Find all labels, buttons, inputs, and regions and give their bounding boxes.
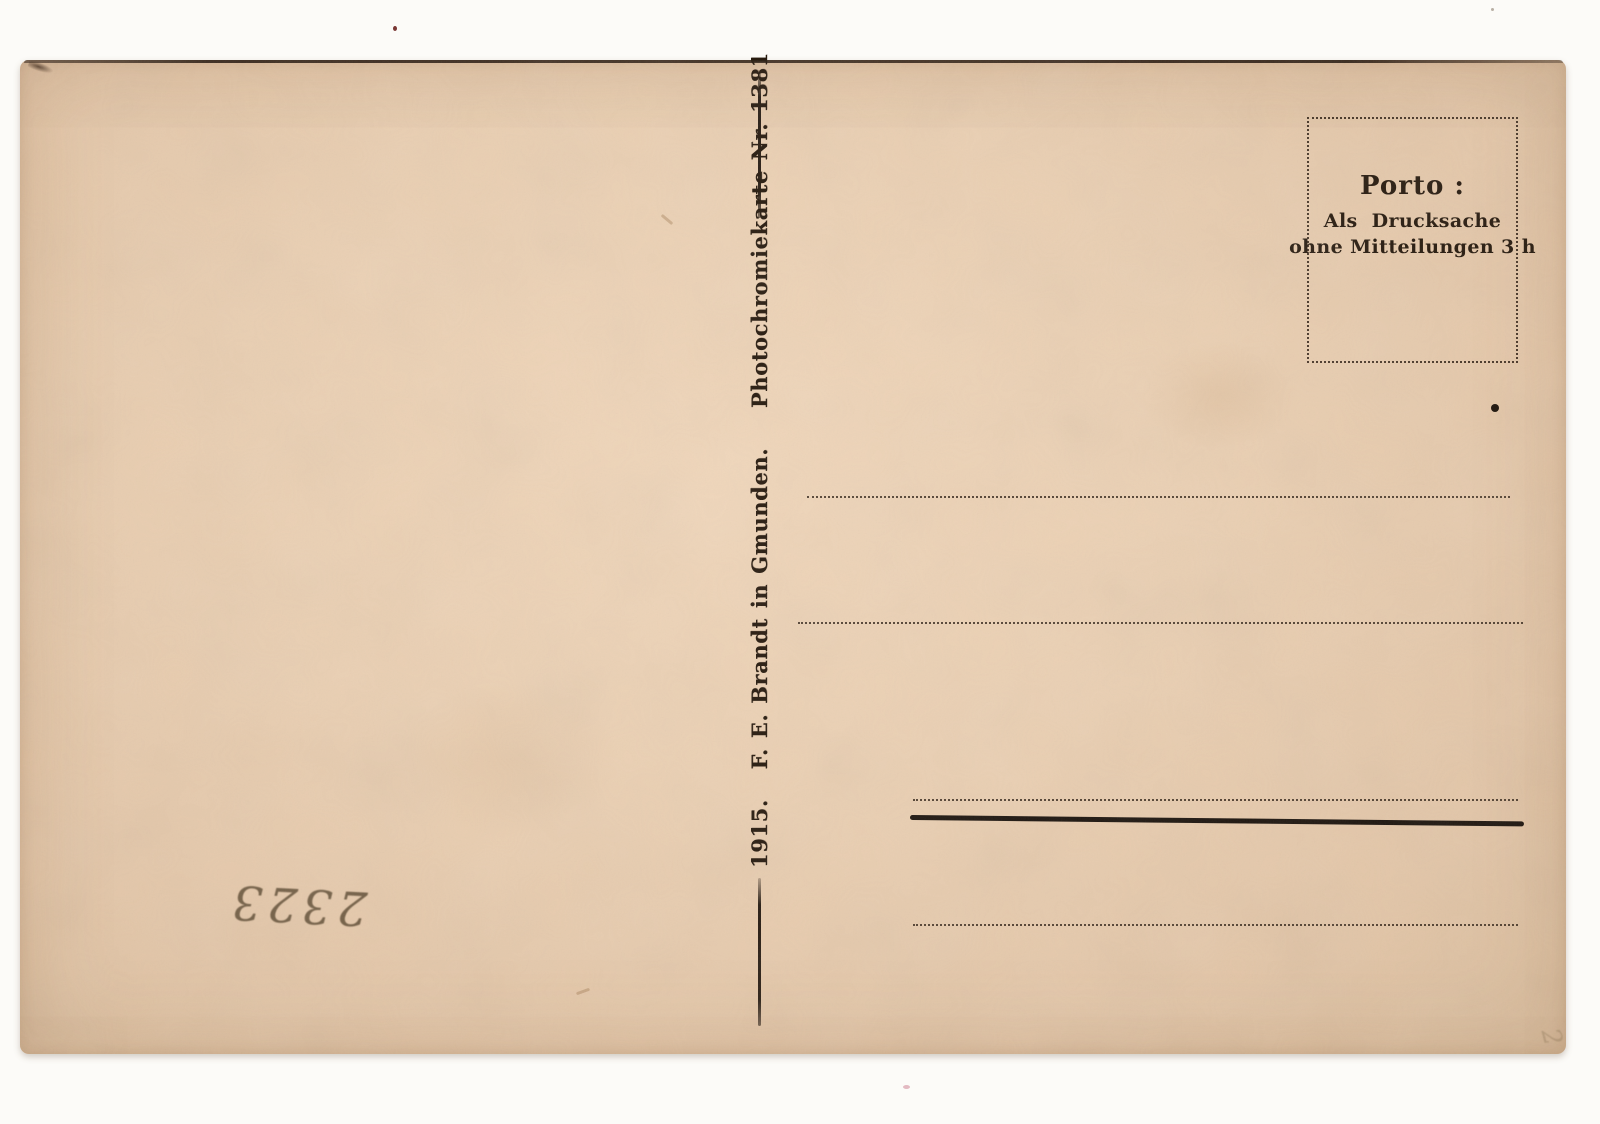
ink-dot xyxy=(1491,404,1499,412)
handwritten-inventory-number: 2323 xyxy=(223,864,372,943)
dust-speck xyxy=(393,26,397,31)
stamp-box-title: Porto : xyxy=(1360,171,1465,201)
publisher-imprint: 1915. F. E. Brandt in Gmunden. Photochro… xyxy=(745,228,775,868)
stamp-box-line1: Als Drucksache xyxy=(1324,210,1501,232)
stamp-box-line2: ohne Mitteilungen 3 h xyxy=(1289,236,1536,258)
scanned-postcard-back: 1915. F. E. Brandt in Gmunden. Photochro… xyxy=(0,0,1600,1124)
address-line-4 xyxy=(913,924,1518,926)
paper-stain xyxy=(1140,340,1300,450)
address-line-thick-rule xyxy=(910,815,1524,826)
address-line-2 xyxy=(798,622,1523,624)
pencil-smudge: 2 xyxy=(1535,1025,1568,1049)
dust-speck xyxy=(1491,8,1494,11)
postcard: 1915. F. E. Brandt in Gmunden. Photochro… xyxy=(20,60,1566,1054)
address-line-1 xyxy=(807,496,1510,498)
card-top-edge-shadow xyxy=(24,60,1563,63)
paper-fiber xyxy=(576,988,590,996)
paper-fiber xyxy=(661,214,674,225)
paper-stain xyxy=(400,680,620,840)
divider-rule-bottom xyxy=(758,878,761,1026)
dust-speck xyxy=(903,1085,910,1089)
address-line-3 xyxy=(913,799,1518,801)
stamp-box: Porto : Als Drucksache ohne Mitteilungen… xyxy=(1307,117,1518,363)
